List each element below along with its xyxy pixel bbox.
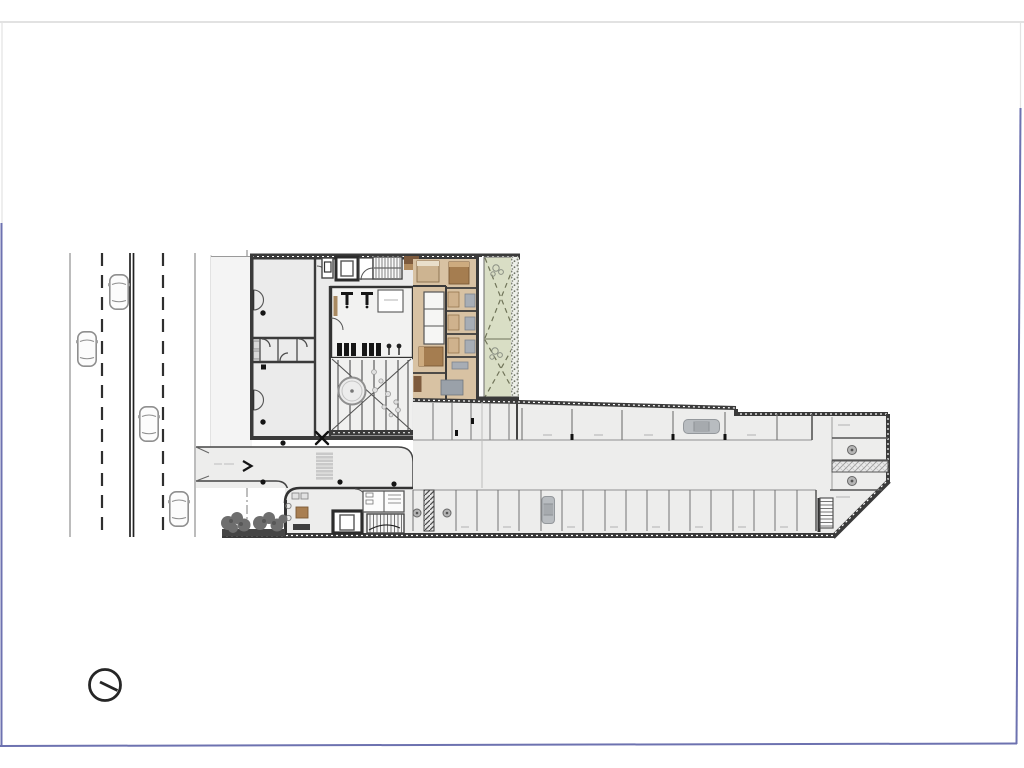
- patio-court: [331, 358, 413, 436]
- moving-car-2: [76, 332, 98, 366]
- west-wall: [250, 254, 254, 440]
- street-trees: [221, 512, 288, 536]
- column-dot: [260, 419, 265, 424]
- bench-wood: [334, 296, 338, 316]
- moving-car-1: [108, 275, 130, 309]
- moving-car-4: [168, 492, 190, 526]
- page-right-edge-blue: [1017, 108, 1021, 744]
- service-stair: [818, 498, 834, 532]
- spa-center: [350, 389, 354, 393]
- column-dot: [261, 365, 266, 370]
- front-terrace: [211, 256, 252, 447]
- floor-plan-drawing: [0, 0, 1024, 768]
- column-dot: [391, 481, 396, 486]
- column-dot: [337, 479, 342, 484]
- faint-label: [384, 299, 398, 301]
- garden: [479, 257, 519, 401]
- round-column-dot: [446, 512, 449, 515]
- garden-walk: [479, 257, 484, 398]
- hatched-column: [424, 490, 434, 531]
- hedge-border: [511, 257, 519, 398]
- main-stair: [373, 257, 402, 279]
- gym: [331, 287, 413, 358]
- south-wall-upper-block: [250, 436, 415, 440]
- column-dot: [260, 310, 265, 315]
- scanned-plan-page: [0, 0, 1024, 768]
- round-column-dot: [416, 512, 419, 515]
- lobby-stair: [367, 514, 404, 533]
- column-dot: [280, 440, 285, 445]
- parked-car-lower: [542, 497, 555, 524]
- column-dot: [260, 479, 265, 484]
- page-bottom-edge-blue: [0, 744, 1017, 747]
- apartments: [413, 256, 478, 400]
- driveway: [196, 440, 413, 493]
- moving-car-3: [138, 407, 160, 441]
- faint-label: [214, 463, 234, 465]
- service-rooms: [363, 491, 404, 512]
- north-indicator: [90, 670, 121, 701]
- apartment-bath-block: [424, 292, 444, 344]
- parked-car-upper: [684, 420, 720, 434]
